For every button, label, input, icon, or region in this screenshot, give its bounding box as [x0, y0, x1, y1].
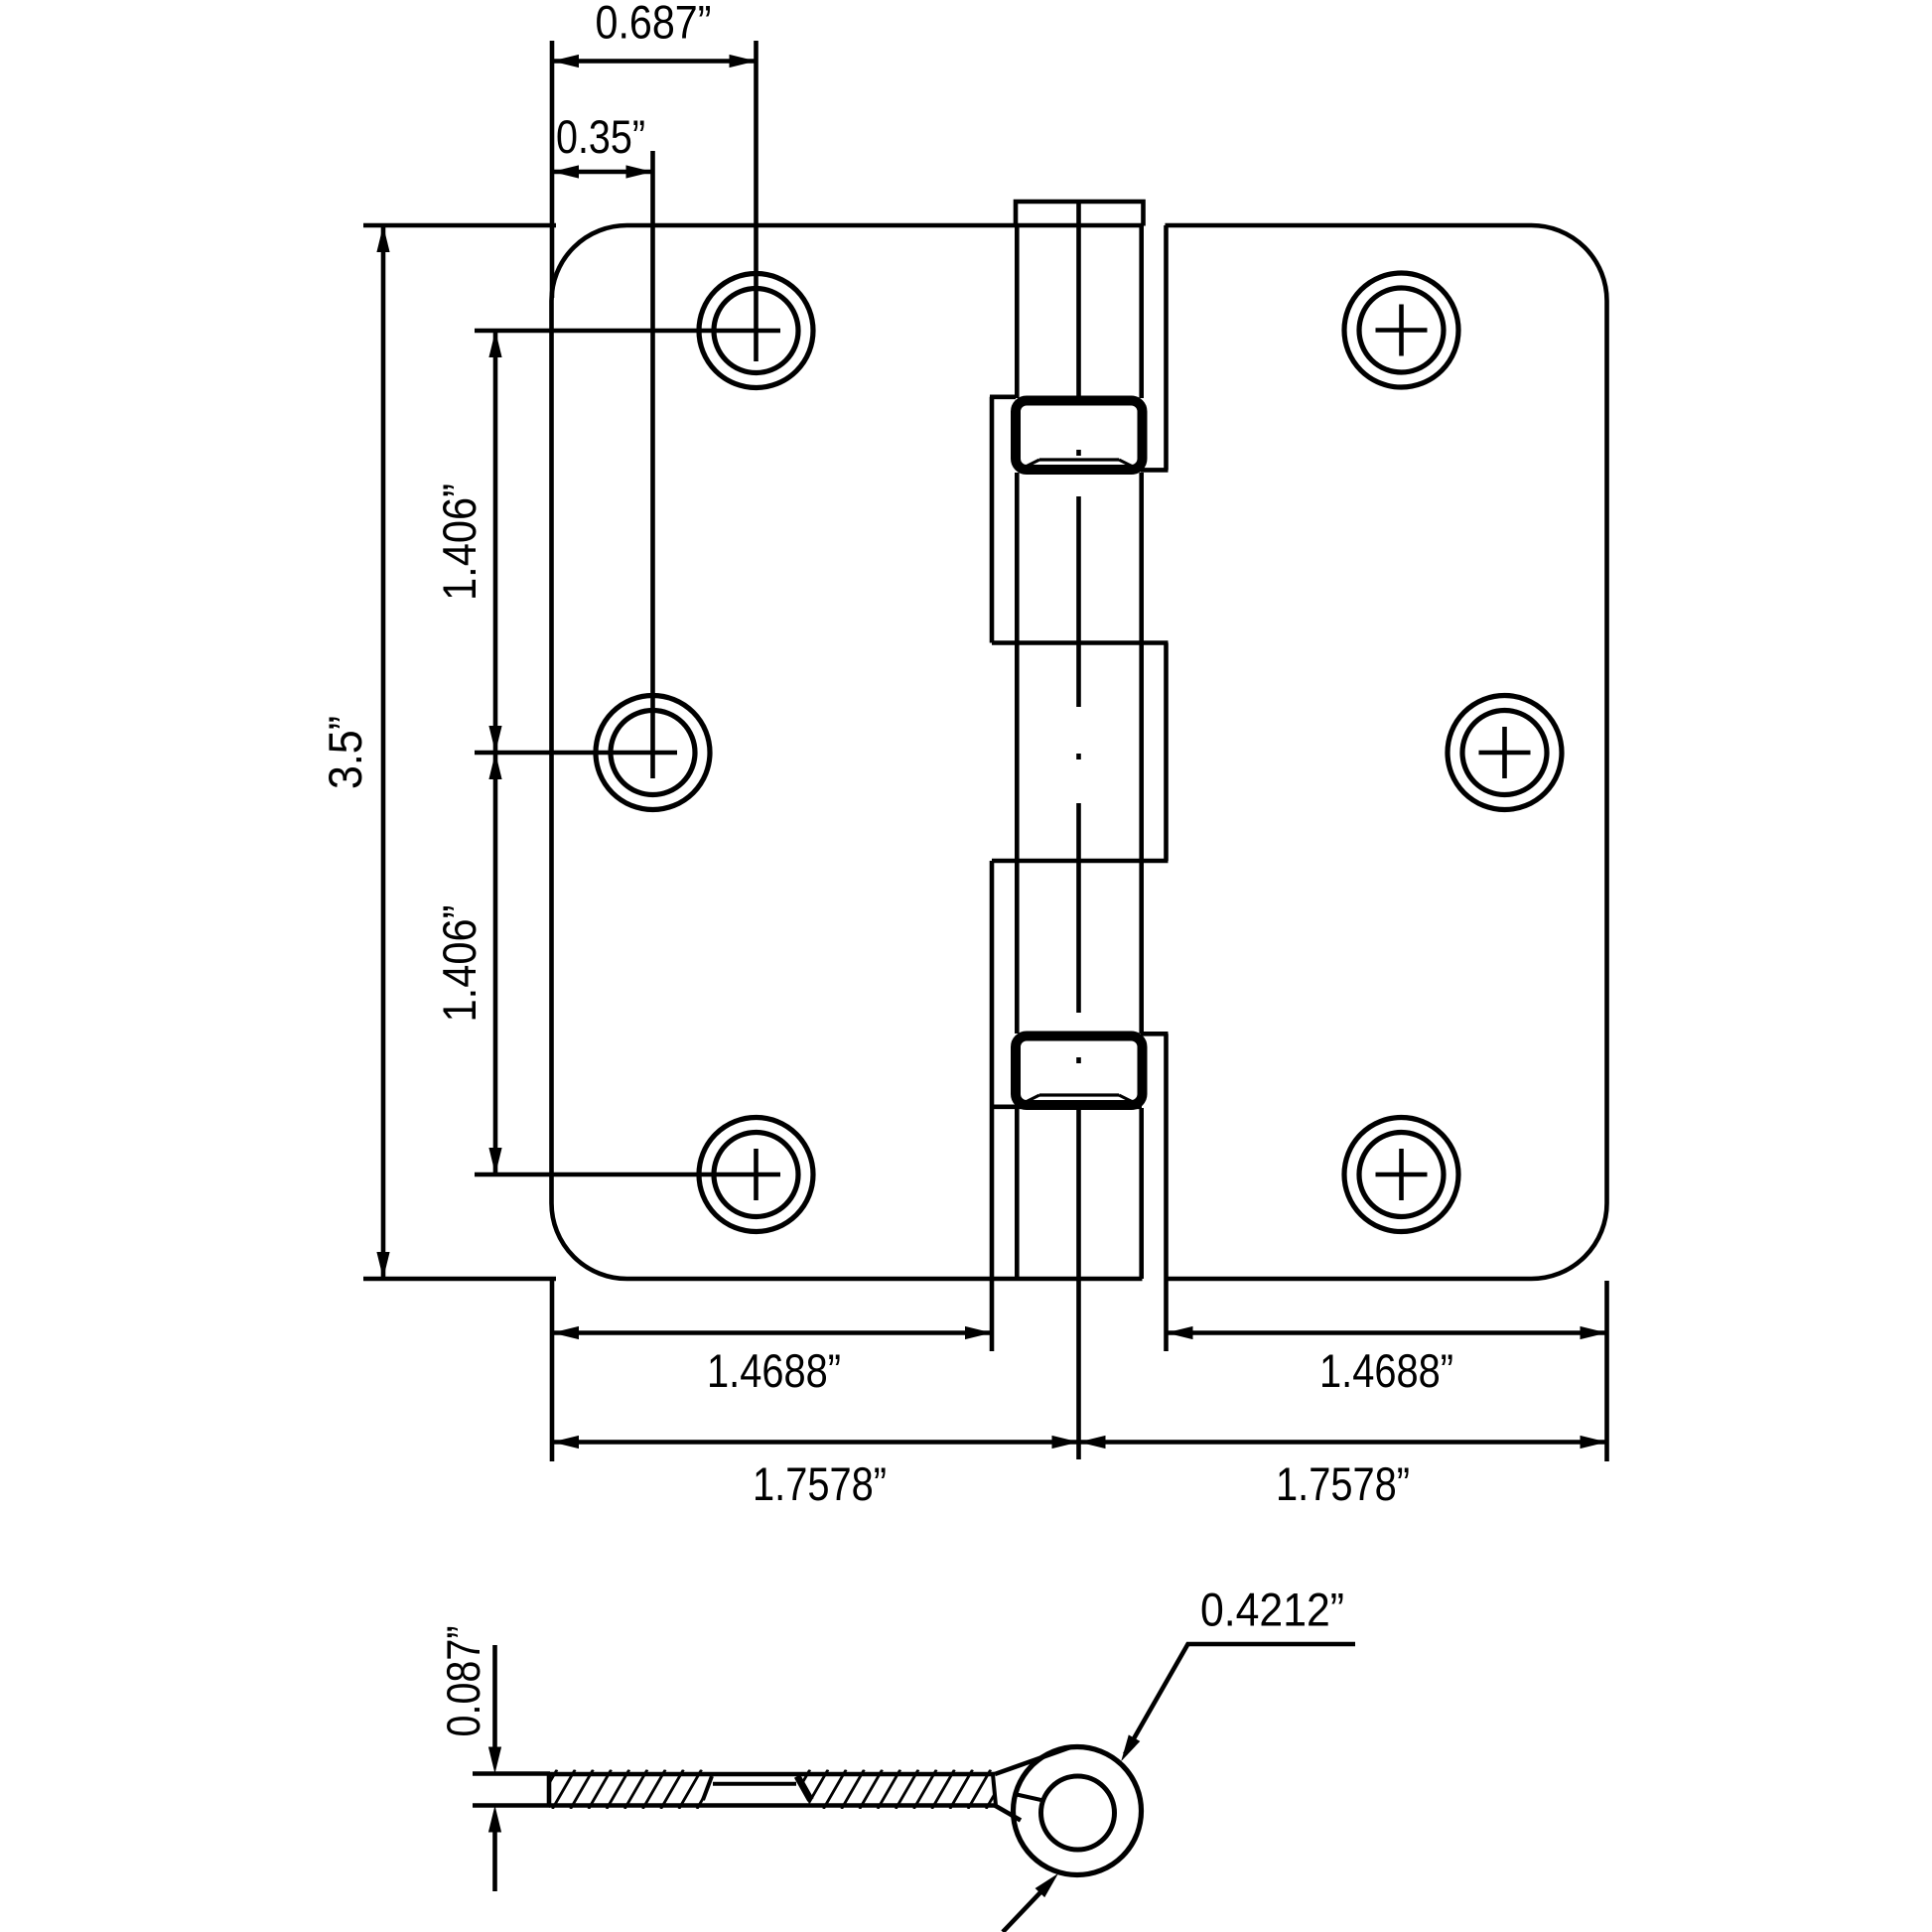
svg-text:0.087”: 0.087”	[437, 1626, 489, 1737]
svg-text:3.5”: 3.5”	[319, 716, 371, 789]
svg-text:1.7578”: 1.7578”	[753, 1457, 887, 1510]
svg-text:0.35”: 0.35”	[556, 110, 645, 163]
svg-text:1.406”: 1.406”	[433, 905, 485, 1023]
svg-text:1.4688”: 1.4688”	[707, 1344, 841, 1397]
svg-text:1.7578”: 1.7578”	[1276, 1457, 1410, 1510]
svg-text:0.4212”: 0.4212”	[1200, 1584, 1344, 1636]
svg-text:0.687”: 0.687”	[596, 0, 712, 49]
svg-text:1.406”: 1.406”	[433, 483, 485, 601]
svg-text:1.4688”: 1.4688”	[1319, 1344, 1453, 1397]
